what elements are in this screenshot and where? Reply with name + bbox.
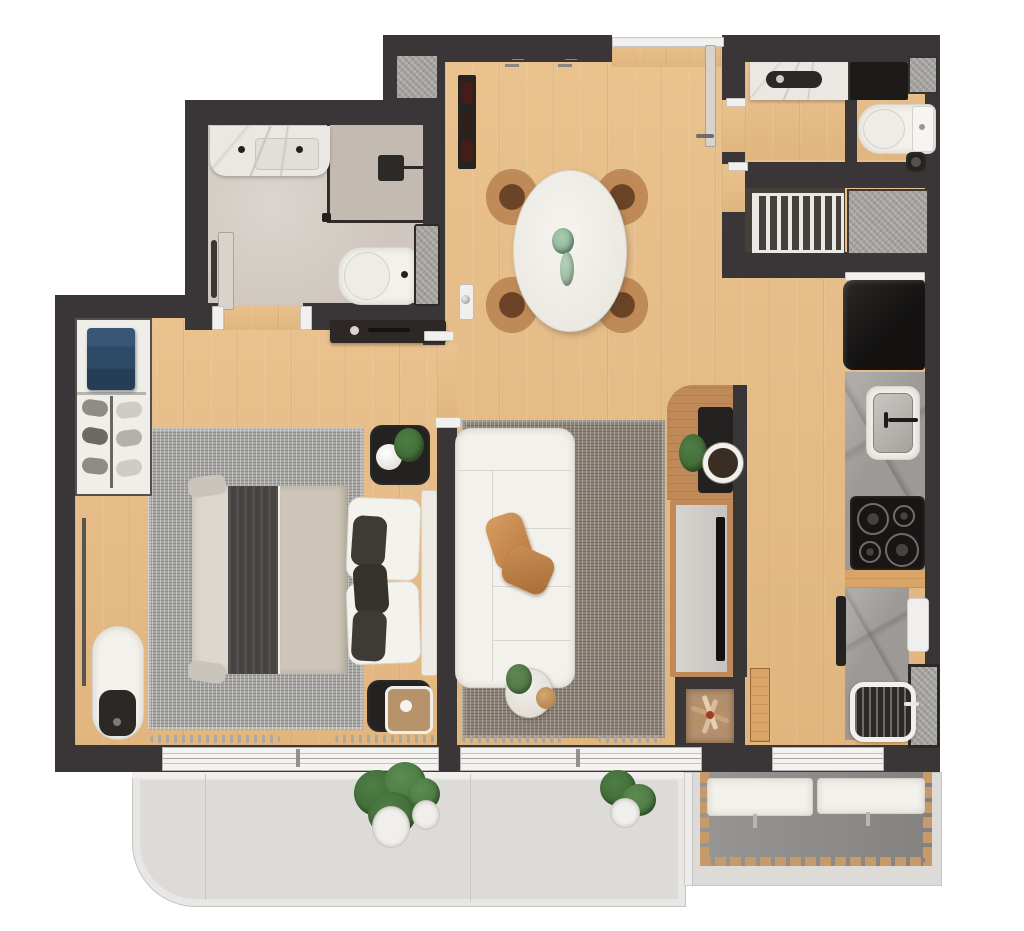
grill-tap — [904, 702, 919, 706]
burner-large-top — [857, 503, 889, 535]
window-living — [460, 747, 702, 771]
gourmet-bench-1 — [707, 778, 813, 816]
deck-wood-border-bottom — [700, 857, 932, 866]
bathroom-door-leaf — [218, 232, 234, 310]
vanity-basin-outline — [255, 138, 319, 170]
bench-cushion — [99, 690, 136, 736]
balcony-plant-pot-b — [412, 800, 440, 830]
wall-switch-dome — [461, 295, 470, 304]
balcony-joint-1 — [205, 774, 206, 900]
bathroom-door-towels — [211, 240, 217, 298]
burner-small-top — [893, 505, 915, 527]
window-bedroom-mullion — [296, 749, 300, 767]
balcony-plant-pot-a — [372, 806, 410, 848]
sofa-seam-4 — [492, 640, 571, 641]
nightstand-tray-ball — [400, 700, 412, 712]
curtain-bedroom-right — [335, 735, 435, 743]
wall-bedroom-top — [55, 295, 208, 318]
washer-knob — [776, 75, 784, 83]
shaft-mat — [397, 56, 437, 98]
laundry-black-cabinet — [850, 62, 908, 100]
tv — [716, 517, 725, 661]
corner-desk-bowl — [703, 443, 743, 483]
window-kitchen — [772, 747, 884, 771]
waste-bin-lid — [911, 157, 921, 167]
bed-runner — [228, 486, 278, 674]
wine-bottle-1 — [461, 82, 473, 104]
shower-head — [378, 155, 404, 181]
bed-cushion-3 — [351, 610, 388, 662]
balcony-joint-2 — [470, 774, 471, 902]
toilet-bathroom-lid — [344, 252, 390, 300]
washer-door — [766, 71, 822, 88]
bench-cushion-dot — [113, 718, 121, 726]
wall-bedroom-living-divider — [437, 425, 457, 745]
burner-large-bottom — [885, 533, 919, 567]
curtain-living-right — [598, 735, 660, 743]
side-table-plant — [506, 664, 532, 694]
shoe-5 — [81, 457, 109, 476]
table-centerpiece-trail — [560, 252, 574, 286]
shoe-rail — [110, 396, 113, 488]
curtain-bedroom-left — [150, 735, 280, 743]
wall-left — [55, 295, 75, 772]
bathroom-door-sill-right — [300, 306, 312, 330]
drying-rack — [752, 193, 844, 253]
gourmet-bench-2-leg — [866, 812, 870, 826]
side-table-basket — [536, 687, 556, 709]
floor-plan — [0, 0, 1024, 931]
bedroom-door-cap — [435, 417, 461, 428]
kitchen-wood-panel — [750, 668, 770, 742]
vanity-faucet-2 — [296, 146, 303, 153]
wall-tv-partition — [733, 385, 747, 677]
sofa-seam-vertical — [492, 470, 493, 682]
nightstand-plant — [394, 428, 424, 462]
gourmet-bench-2 — [817, 778, 925, 814]
wine-bottle-2 — [461, 112, 473, 134]
bathroom-door-sill-left — [212, 306, 224, 330]
shower-arm — [402, 166, 423, 169]
kitchen-towel — [907, 598, 929, 652]
toilet-service-lid — [863, 109, 905, 149]
bed-cushion-1 — [350, 515, 387, 567]
table-centerpiece-plant — [552, 228, 574, 254]
shower-valve — [322, 213, 331, 222]
wall-bathroom-top — [185, 100, 445, 125]
floor-bathroom-doorway — [224, 303, 303, 330]
kitchen-sink-basin — [873, 393, 913, 453]
hall-sideboard-decor-stick — [368, 328, 410, 332]
wine-bottle-3 — [461, 140, 473, 162]
burner-small-bottom — [859, 541, 881, 563]
technical-tile-platform — [847, 189, 929, 255]
toilet-service-button — [919, 124, 925, 130]
wall-bathroom-right — [423, 100, 445, 345]
floor-bedroom-doorway — [437, 343, 457, 425]
grill — [850, 682, 916, 742]
service-door-opening-2 — [722, 164, 745, 212]
bed-cushion-2 — [352, 563, 389, 615]
bed-blanket — [278, 486, 347, 674]
technical-door-sill — [728, 162, 748, 171]
pendant-light-1 — [505, 64, 519, 67]
bathroom-wall-niche — [414, 224, 440, 306]
entry-door-handle — [696, 134, 714, 138]
kitchen-faucet — [888, 418, 918, 422]
pendant-light-2 — [558, 64, 572, 67]
laundry-mat — [908, 56, 938, 94]
service-door-opening-1 — [722, 100, 745, 152]
mirror-rail — [82, 518, 86, 686]
hall-sideboard-decor-bowl — [350, 326, 359, 335]
folded-clothes-blue — [87, 328, 135, 390]
window-living-mullion — [576, 749, 580, 767]
laundry-door-sill — [726, 98, 746, 107]
cutting-board — [836, 596, 846, 666]
wall-service-left — [722, 62, 745, 258]
curtain-living-left — [462, 735, 562, 743]
kitchen-wood-shelf — [845, 570, 925, 588]
wall-laundry-divider — [745, 162, 925, 188]
entry-door-leaf — [705, 45, 716, 147]
wardrobe-shelf-divider — [77, 392, 146, 395]
refrigerator — [843, 280, 925, 370]
gourmet-bench-1-leg — [753, 814, 757, 828]
shower-area — [327, 123, 426, 223]
bed-headboard — [421, 490, 437, 676]
sofa-seam-1 — [457, 470, 571, 471]
hall-sill — [424, 331, 454, 341]
kitchen-faucet-handle — [884, 412, 888, 428]
balcony-plant-pot-c — [610, 798, 640, 828]
vanity-faucet-1 — [238, 146, 245, 153]
toilet-bathroom-button — [401, 271, 408, 278]
dried-plant-center — [706, 711, 714, 719]
